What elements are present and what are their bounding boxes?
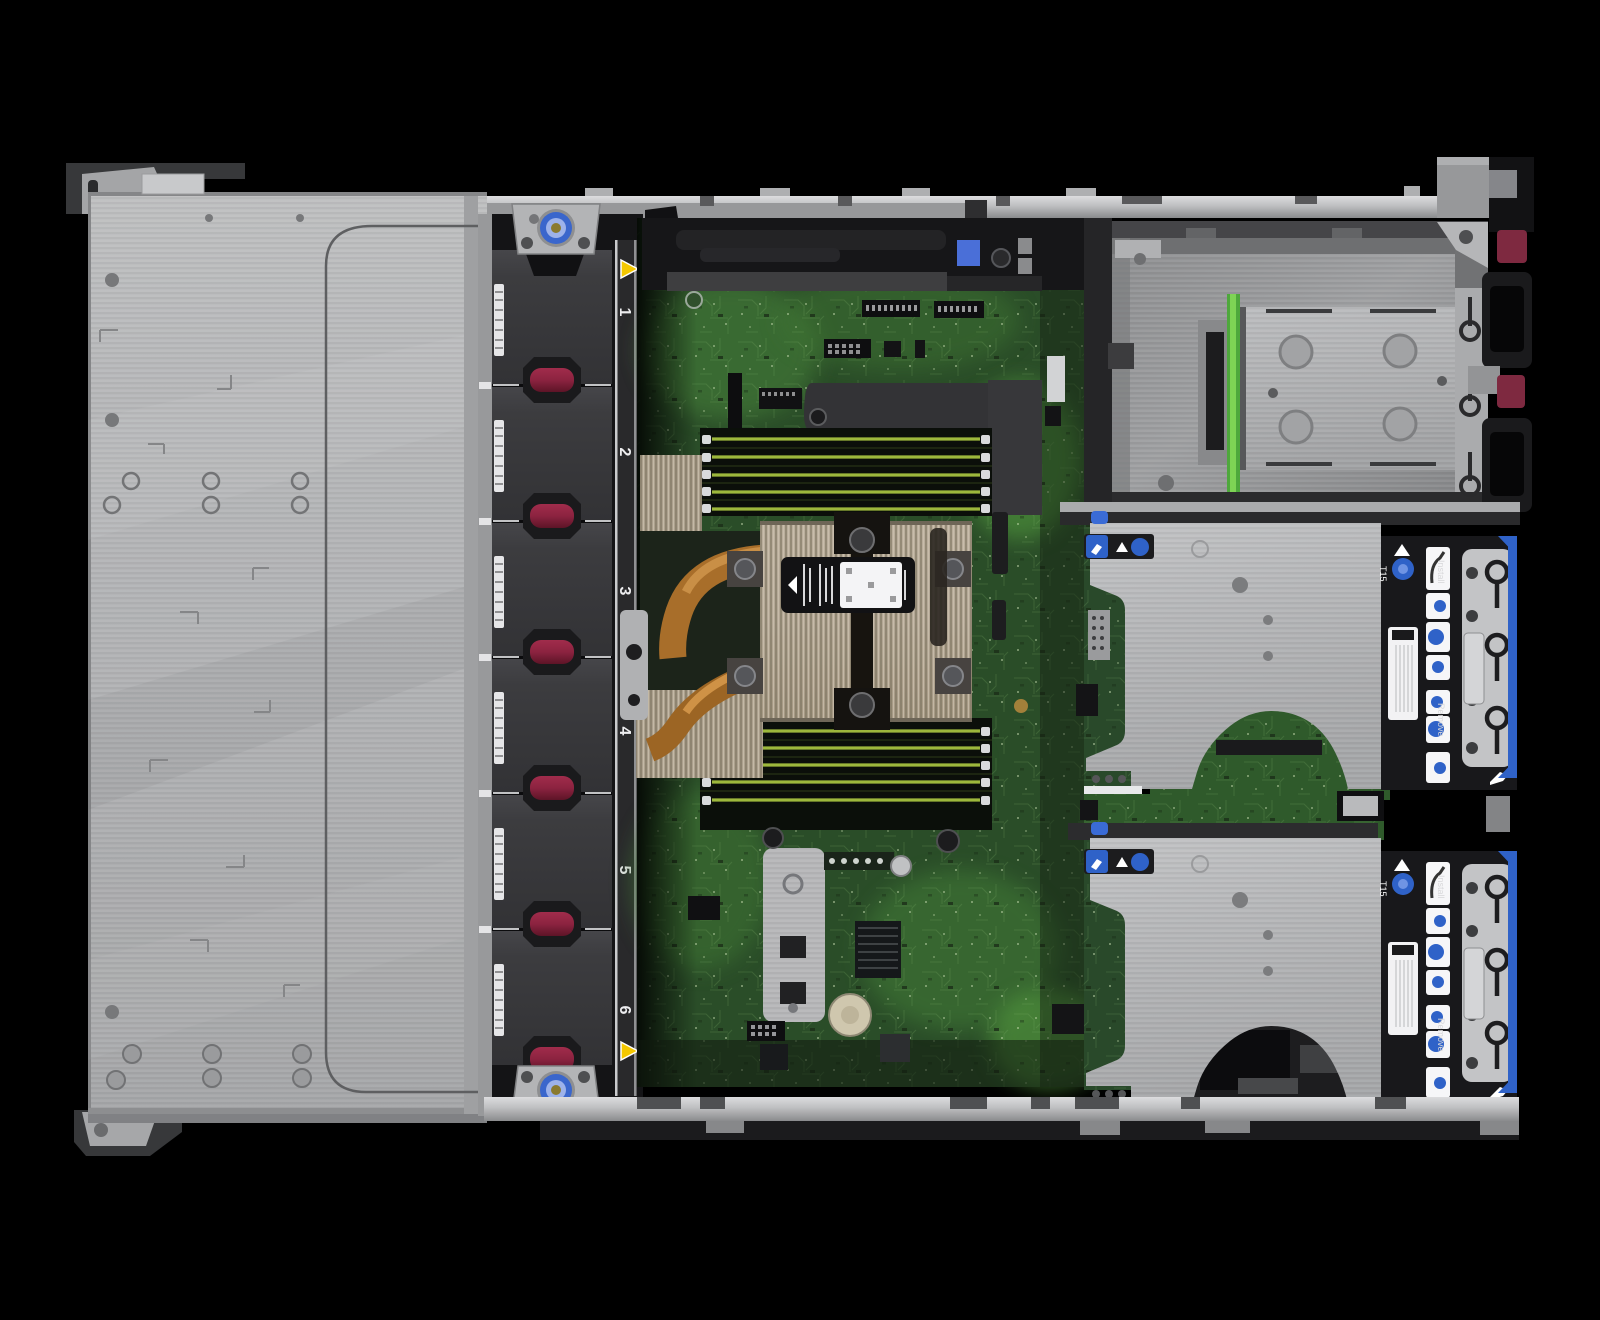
svg-text:T15: T15 [1378, 566, 1388, 582]
svg-text:Install: Install [1436, 560, 1446, 584]
svg-text:6: 6 [616, 1006, 633, 1015]
svg-text:T15: T15 [1378, 881, 1388, 897]
svg-text:Remove: Remove [1436, 703, 1446, 737]
svg-text:2: 2 [616, 448, 633, 457]
svg-text:4: 4 [616, 727, 633, 736]
svg-text:3: 3 [616, 587, 633, 596]
svg-text:1: 1 [616, 308, 633, 317]
svg-text:Install: Install [1436, 875, 1446, 899]
svg-text:Remove: Remove [1436, 1018, 1446, 1052]
